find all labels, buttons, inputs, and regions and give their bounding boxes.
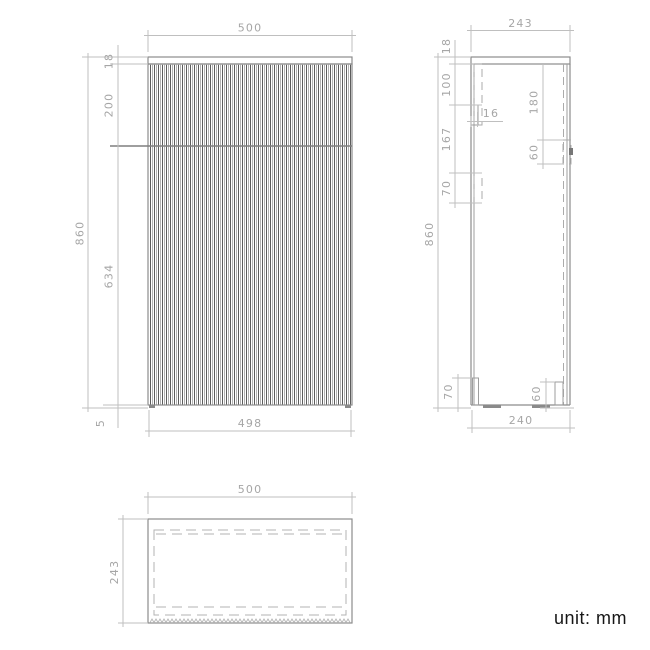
dim-side-hanger-gap: 167 bbox=[440, 127, 453, 152]
dim-front-door-height: 634 bbox=[103, 264, 116, 289]
dim-side-hanger-offset: 100 bbox=[440, 72, 453, 97]
dim-side-front-bracket-offset: 180 bbox=[528, 90, 541, 115]
back-foot-bracket bbox=[473, 378, 479, 405]
hidden-back-bracket bbox=[474, 173, 482, 203]
dim-side-overall-height: 860 bbox=[423, 222, 436, 247]
dim-side-upper-back-bracket: 70 bbox=[440, 180, 453, 196]
dim-front-overall-width: 500 bbox=[238, 22, 263, 35]
dim-front-drawer-height: 200 bbox=[103, 93, 116, 118]
dim-front-bottom-width: 498 bbox=[238, 417, 263, 430]
dim-side-front-foot-height: 60 bbox=[530, 385, 543, 401]
front-view: 500 860 18 200 634 5 498 bbox=[74, 22, 357, 438]
plan-fluted-edge-zigzag bbox=[150, 619, 350, 623]
front-right-foot bbox=[345, 405, 351, 408]
side-view: 243 18 100 167 70 16 180 60 860 70 bbox=[423, 17, 575, 433]
dim-side-back-foot-height: 70 bbox=[442, 383, 455, 399]
front-foot-bracket bbox=[555, 382, 563, 405]
dim-front-top-panel: 18 bbox=[103, 53, 116, 69]
front-top-panel bbox=[148, 57, 352, 64]
plan-hidden-carcass bbox=[154, 530, 346, 615]
dim-side-rail-depth: 16 bbox=[483, 107, 499, 120]
front-bracket-catch bbox=[569, 148, 573, 155]
fluted-front-pattern bbox=[151, 65, 351, 405]
unit-note: unit: mm bbox=[554, 608, 627, 628]
side-back-foot-pad bbox=[483, 405, 501, 408]
dim-side-front-bracket-height: 60 bbox=[528, 144, 541, 160]
dim-front-plinth-height: 5 bbox=[94, 419, 107, 427]
dim-side-top-panel: 18 bbox=[440, 38, 453, 54]
top-view: 500 243 bbox=[108, 483, 356, 627]
dim-plan-width: 500 bbox=[238, 483, 263, 496]
dim-plan-depth: 243 bbox=[108, 560, 121, 585]
side-top-panel bbox=[471, 57, 570, 64]
technical-drawing-canvas: 500 860 18 200 634 5 498 bbox=[0, 0, 650, 650]
front-left-foot bbox=[149, 405, 155, 408]
dim-side-overall-depth: 243 bbox=[508, 17, 533, 30]
dim-front-overall-height: 860 bbox=[74, 221, 87, 246]
dim-side-bottom-depth: 240 bbox=[509, 414, 534, 427]
